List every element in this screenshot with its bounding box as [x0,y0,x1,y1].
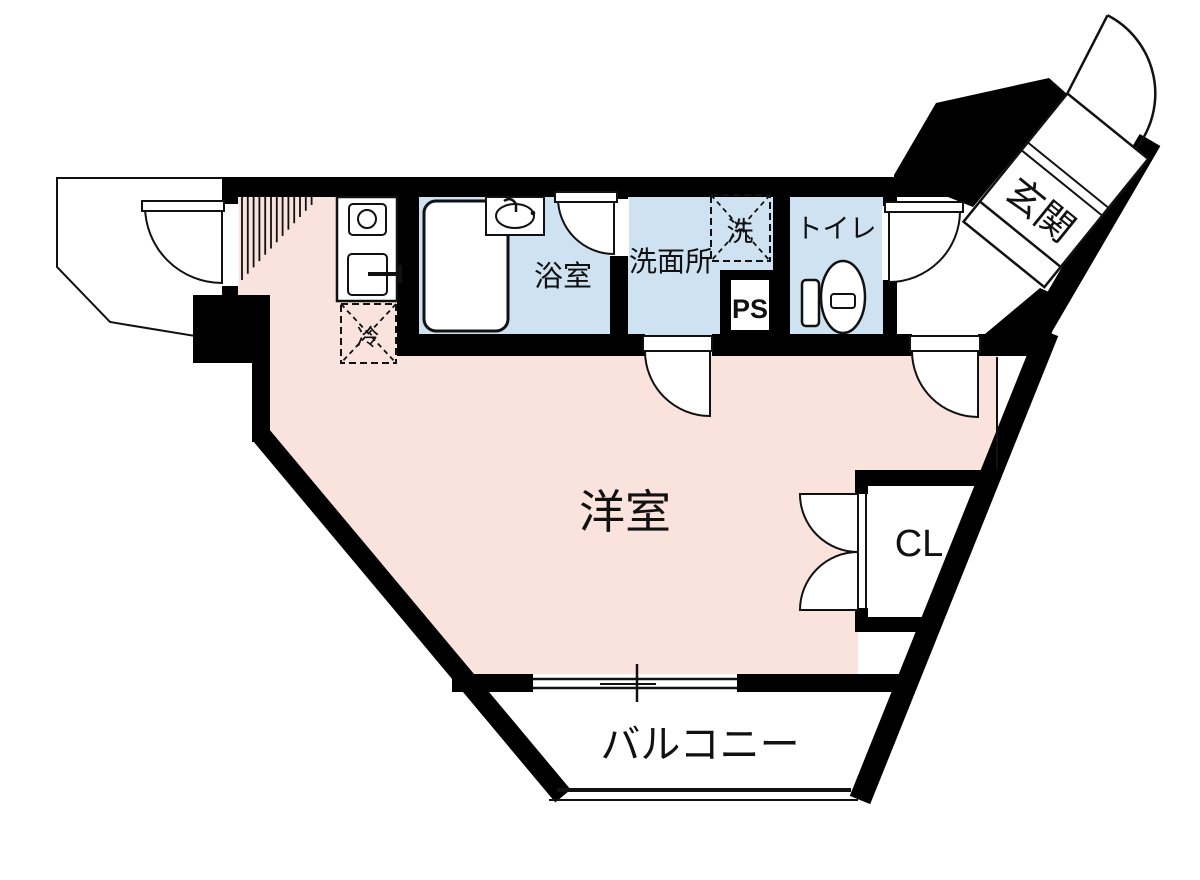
basin-drain-dot [531,211,536,216]
wall-toilet-hall-lower [883,280,897,336]
living-label: 洋室 [579,486,671,538]
living-door-leaf [910,336,980,351]
stove-burner-icon [358,210,376,228]
wall-bottom-wet-2 [712,334,912,356]
bath-label: 浴室 [534,260,592,293]
wall-closet-top [855,470,995,486]
wall-room-bottom-left [452,674,540,692]
alcove-door-leaf [142,201,224,211]
washroom-label: 洗面所 [629,246,713,277]
wall-room-bottom-right [735,674,907,692]
wall-left-lower [252,360,270,442]
alcove-door-gap [222,204,239,286]
bath-door-leaf [555,192,617,202]
wall-kitchen-bath [397,190,419,338]
toilet-seat [831,294,855,308]
toilet-door-leaf [885,202,963,212]
wall-left-pillar [193,295,270,363]
toilet-label: トイレ [796,214,877,244]
wall-bottom-wet-1 [397,334,645,356]
washer-label: 洗 [727,217,754,247]
closet-label: CL [895,523,944,565]
pipe-space-label: PS [732,294,768,324]
toilet-tank [802,280,819,326]
refrigerator-label: 冷 [357,324,380,350]
balcony-label: バルコニー [600,723,799,767]
washroom-door-leaf [643,336,712,351]
kitchen-faucet-base [396,265,402,283]
wall-closet-bottom [855,617,931,632]
floor-plan: 玄関 洋室 浴室 洗面所 トイレ バルコニー CL PS 洗 冷 [0,0,1200,880]
floor-plan-canvas: 玄関 洋室 浴室 洗面所 トイレ バルコニー CL PS 洗 冷 [0,0,1200,880]
